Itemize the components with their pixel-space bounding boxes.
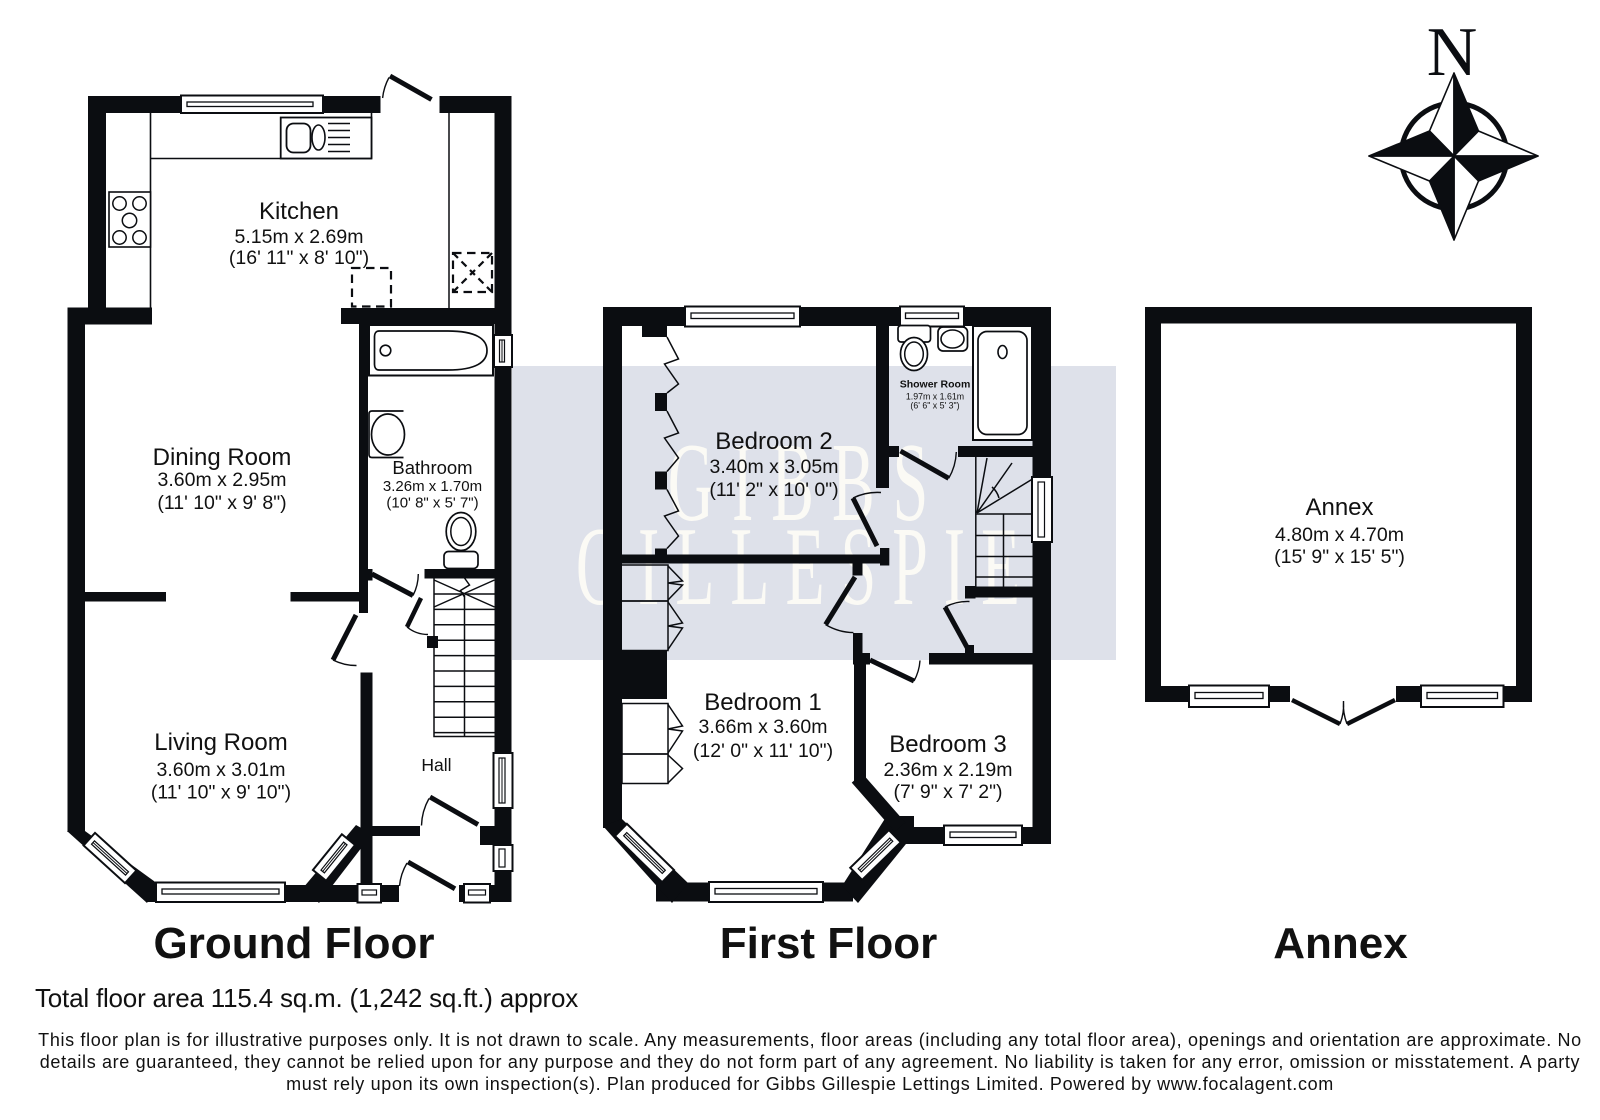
svg-text:Bedroom 3: Bedroom 3 (889, 731, 1006, 758)
svg-text:First Floor: First Floor (720, 919, 938, 968)
svg-text:Hall: Hall (421, 755, 451, 775)
svg-text:3.66m x 3.60m: 3.66m x 3.60m (699, 716, 828, 738)
svg-text:Bedroom 1: Bedroom 1 (704, 689, 821, 716)
svg-text:(11' 2" x 10' 0"): (11' 2" x 10' 0") (709, 479, 838, 501)
svg-text:Bedroom 2: Bedroom 2 (715, 428, 832, 455)
svg-text:details are guaranteed, they c: details are guaranteed, they cannot be r… (40, 1052, 1580, 1072)
svg-text:Total floor area 115.4 sq.m. (: Total floor area 115.4 sq.m. (1,242 sq.f… (35, 983, 578, 1013)
svg-text:Bathroom: Bathroom (392, 457, 472, 478)
svg-text:Dining Room: Dining Room (153, 444, 292, 471)
svg-text:(6' 6" x 5' 3"): (6' 6" x 5' 3") (910, 401, 959, 411)
svg-text:3.26m x 1.70m: 3.26m x 1.70m (383, 478, 482, 495)
svg-text:Ground Floor: Ground Floor (153, 919, 434, 968)
svg-text:3.40m x 3.05m: 3.40m x 3.05m (710, 456, 839, 478)
svg-text:Annex: Annex (1273, 919, 1408, 968)
svg-text:(15' 9" x 15' 5"): (15' 9" x 15' 5") (1274, 546, 1405, 568)
svg-text:(11' 10" x 9' 10"): (11' 10" x 9' 10") (151, 782, 291, 804)
svg-text:GILLESPIE: GILLESPIE (576, 505, 1036, 629)
svg-text:This floor plan is for illustr: This floor plan is for illustrative purp… (38, 1030, 1582, 1050)
svg-text:must rely upon its own inspect: must rely upon its own inspection(s). Pl… (286, 1074, 1334, 1094)
svg-text:2.36m x 2.19m: 2.36m x 2.19m (884, 759, 1013, 781)
svg-text:(7' 9" x 7' 2"): (7' 9" x 7' 2") (893, 781, 1002, 803)
svg-text:Shower Room: Shower Room (900, 379, 971, 391)
svg-text:Living Room: Living Room (154, 729, 287, 756)
svg-text:3.60m x 2.95m: 3.60m x 2.95m (158, 469, 287, 491)
svg-text:Annex: Annex (1305, 494, 1373, 521)
svg-text:4.80m x 4.70m: 4.80m x 4.70m (1275, 524, 1404, 546)
svg-text:(16' 11" x 8' 10"): (16' 11" x 8' 10") (229, 247, 369, 269)
svg-text:5.15m x 2.69m: 5.15m x 2.69m (235, 226, 364, 248)
svg-text:(11' 10" x 9' 8"): (11' 10" x 9' 8") (157, 492, 286, 514)
svg-text:(10' 8" x 5' 7"): (10' 8" x 5' 7") (386, 495, 478, 512)
svg-text:Kitchen: Kitchen (259, 198, 339, 225)
svg-text:(12' 0" x 11' 10"): (12' 0" x 11' 10") (693, 740, 833, 762)
svg-text:3.60m x 3.01m: 3.60m x 3.01m (157, 759, 286, 781)
